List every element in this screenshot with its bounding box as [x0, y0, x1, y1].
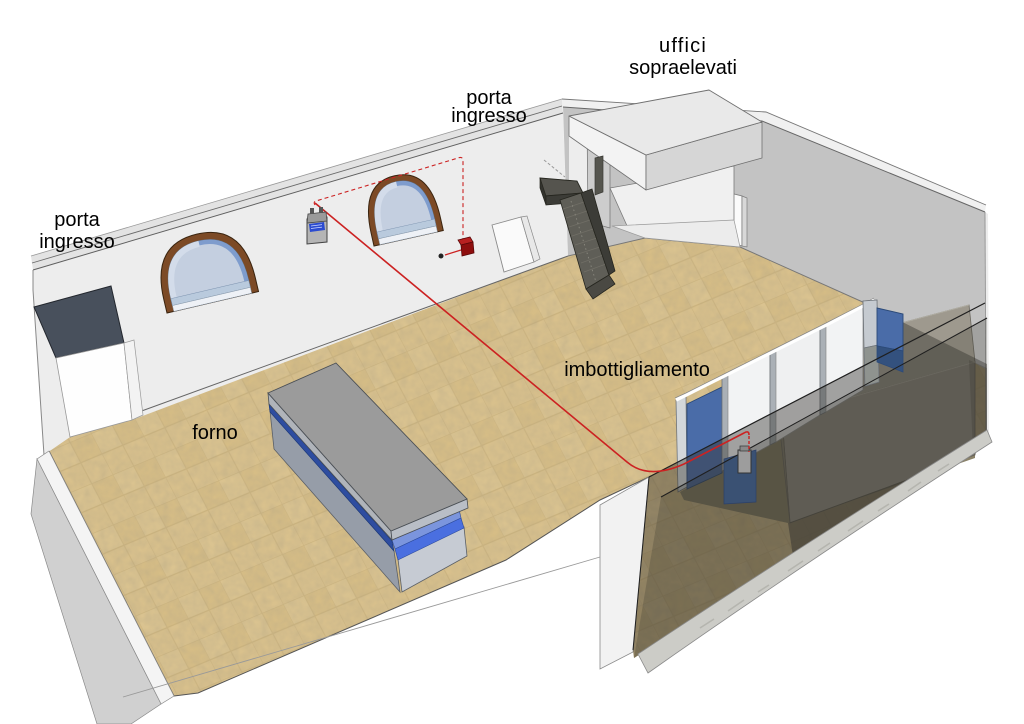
- svg-text:imbottigliamento: imbottigliamento: [564, 359, 710, 381]
- svg-text:uffici: uffici: [659, 35, 707, 57]
- svg-text:porta: porta: [54, 209, 100, 231]
- svg-text:sopraelevati: sopraelevati: [629, 57, 737, 79]
- svg-text:ingresso: ingresso: [451, 105, 527, 127]
- svg-text:forno: forno: [192, 422, 238, 444]
- svg-text:ingresso: ingresso: [39, 231, 115, 253]
